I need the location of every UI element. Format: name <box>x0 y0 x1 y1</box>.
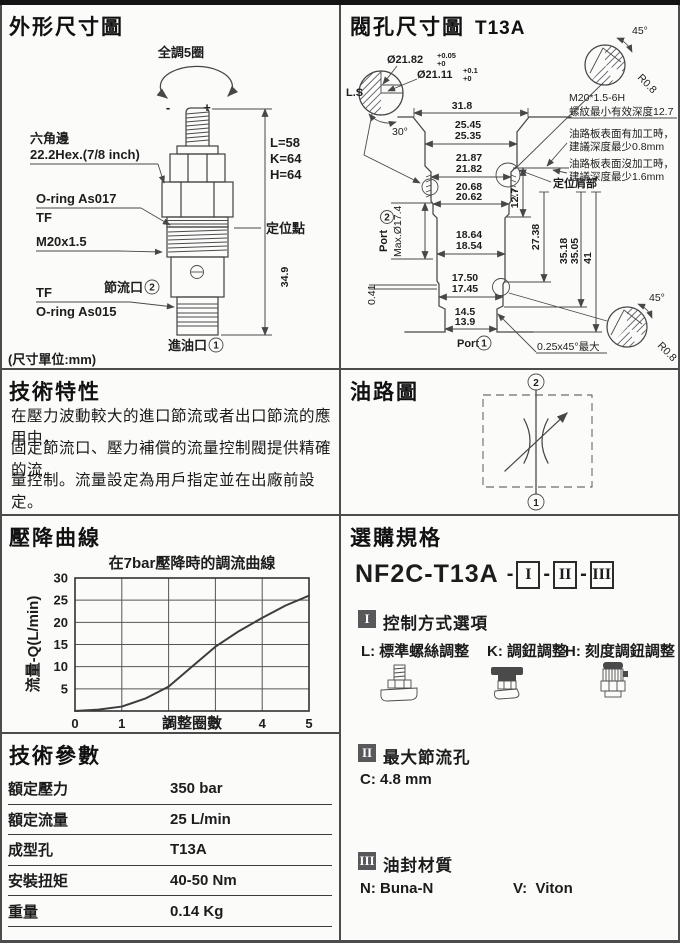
dim-0-41-group: 0.41 <box>366 284 378 305</box>
throttle-arc-right <box>542 419 548 463</box>
dim-18-54: 18.54 <box>456 240 482 252</box>
panel-outline-dimensions: 外形尺寸圖 全調5圈 - + <box>0 5 339 368</box>
page-edge-top <box>0 0 680 5</box>
model-option-box-1: I <box>516 561 540 589</box>
section3-title: 油封材質 <box>383 852 453 876</box>
table-row: 重量0.14 Kg <box>8 896 332 927</box>
section2-badge: II <box>358 744 376 762</box>
table-row: 額定壓力350 bar <box>8 774 332 805</box>
radius-top: R0.8 <box>635 72 659 96</box>
dia2-label: Ø21.11 <box>417 69 452 81</box>
svg-text:5: 5 <box>305 716 312 731</box>
option-L-code: L: <box>361 643 375 660</box>
rotation-arrow <box>160 66 232 98</box>
svg-text:30: 30 <box>54 571 68 586</box>
port2-label-group: Port <box>378 230 390 252</box>
flow-curve-chart: 在7bar壓降時的調流曲線 流量-Q(L/min) 調整圈數 012345510… <box>0 516 339 732</box>
knob-adjust-icon <box>483 662 531 708</box>
model-number: NF2C-T13A <box>355 560 499 589</box>
model-dash-2: - <box>543 563 550 586</box>
seal-n-text: Buna-N <box>380 880 433 897</box>
screw-adjust-icon <box>375 662 423 708</box>
param-value: 40-50 Nm <box>170 872 237 889</box>
page-edge-left <box>0 5 2 943</box>
thread-label: M20x1.5 <box>36 234 87 249</box>
param-label: 重量 <box>8 901 170 922</box>
unit-note: (尺寸單位:mm) <box>8 349 96 368</box>
param-label: 安裝扭矩 <box>8 870 170 891</box>
orifice-value: C: 4.8 mm <box>360 771 432 788</box>
dim-21-82: 21.82 <box>456 163 482 175</box>
minus-label: - <box>166 100 170 115</box>
panel-ordering: 選購規格 NF2C-T13A - I - II - III I 控制方式選項 L… <box>341 516 680 941</box>
inlet-port-label: 進油口 <box>168 338 207 353</box>
model-dash-1: - <box>507 563 514 586</box>
m20-note: M20*1.5-6H <box>569 92 625 104</box>
unmachined-note-1: 油路板表面沒加工時， <box>569 157 674 170</box>
features-line-3: 量控制。流量設定為用戶指定並在出廠前設定。 <box>11 468 339 512</box>
max-dia-group: Max.Ø17.4 <box>392 205 404 257</box>
section2-title: 最大節流孔 <box>383 744 471 768</box>
divider-vertical <box>339 5 341 941</box>
seal-v-code: V: <box>513 880 527 897</box>
dim-27-38: 27.38 <box>530 224 542 250</box>
circuit-diagram: 2 1 <box>341 370 680 514</box>
option-L-text: 標準螺絲調整 <box>379 643 469 660</box>
panel-circuit: 油路圖 2 1 <box>341 370 680 514</box>
svg-text:5: 5 <box>61 681 68 696</box>
chart-plot-area: 01234551015202530 <box>54 571 313 732</box>
section3-badge: III <box>358 852 376 870</box>
param-value: 350 bar <box>170 780 223 797</box>
radius-bot: R0.8 <box>655 340 679 364</box>
svg-text:4: 4 <box>259 716 267 731</box>
dim-25-35: 25.35 <box>455 130 481 142</box>
option-K-text: 調鈕調整 <box>507 643 567 660</box>
option-K-code: K: <box>487 643 503 660</box>
svg-text:25: 25 <box>54 593 68 608</box>
hatch-br1 <box>627 307 646 336</box>
oring-bottom-label: O-ring As015 <box>36 304 116 319</box>
svg-text:3: 3 <box>212 716 219 731</box>
ls-label: L.S <box>346 87 363 99</box>
panel-features: 技術特性 在壓力波動較大的進口節流或者出口節流的應用中， 固定節流口、壓力補償的… <box>0 370 339 514</box>
port1-symbol-num: 1 <box>533 498 539 509</box>
port1-num: 1 <box>481 339 487 350</box>
parameters-table: 額定壓力350 bar 額定流量25 L/min 成型孔T13A 安裝扭矩40-… <box>0 774 339 927</box>
model-dash-3: - <box>580 563 587 586</box>
throttle-port-label: 節流口 <box>104 280 143 295</box>
balloon-left <box>422 179 438 195</box>
angle-30-label: 30° <box>392 126 408 138</box>
dim-H: H=64 <box>270 167 302 182</box>
seal-n-code: N: <box>360 880 376 897</box>
svg-text:1: 1 <box>118 716 125 731</box>
option-H-label: H:刻度調鈕調整 <box>565 640 675 661</box>
dim-0-41: 0.41 <box>366 284 378 305</box>
thread-and-groove-lines <box>167 112 228 326</box>
param-value: T13A <box>170 841 207 858</box>
chart-ylabel: 流量-Q(L/min) <box>24 596 42 693</box>
option-K-label: K:調鈕調整 <box>487 640 567 661</box>
hatch-tr1 <box>605 45 625 72</box>
dim-20-62: 20.62 <box>456 191 482 203</box>
angle-45-bot: 45° <box>649 292 665 304</box>
dim-41: 41 <box>582 252 594 264</box>
balloon-right <box>496 163 520 187</box>
adjust-label: 全調5圈 <box>157 45 204 60</box>
section1-title: 控制方式選項 <box>383 610 488 634</box>
panel-cavity-dimensions: 閥孔尺寸圖T13A L.S Ø21.82 +0.05 +0 Ø21.11 +0.… <box>341 5 680 368</box>
option-L-label: L:標準螺絲調整 <box>361 640 469 661</box>
seal-option-v: V: Viton <box>513 880 573 897</box>
cavity-profile <box>398 117 571 332</box>
param-label: 成型孔 <box>8 839 170 860</box>
chamfer-note: 0.25x45°最大 <box>537 340 600 353</box>
dim-17-45: 17.45 <box>452 283 478 295</box>
panel-parameters: 技術參數 額定壓力350 bar 額定流量25 L/min 成型孔T13A 安裝… <box>0 734 339 941</box>
dim-12-7: 12.7 <box>509 188 521 209</box>
throttle-arc-left <box>524 419 530 463</box>
dim-L: L=58 <box>270 135 300 150</box>
panel-title-ordering: 選購規格 <box>350 522 442 552</box>
chart-title: 在7bar壓降時的調流曲線 <box>109 554 276 572</box>
dim-13-9: 13.9 <box>455 316 476 328</box>
port2-label: Port <box>378 230 390 252</box>
shoulder-label: 定位肩部 <box>553 176 597 190</box>
seal-v-text: Viton <box>536 880 573 897</box>
panel-title-features: 技術特性 <box>9 376 101 406</box>
option-H-code: H: <box>565 643 581 660</box>
dia1-tol-bot: +0 <box>437 59 446 68</box>
dim-34-9: 34.9 <box>279 267 291 288</box>
balloon-bottom <box>493 279 510 296</box>
seal-option-n: N: Buna-N <box>360 880 433 897</box>
inlet-port-num: 1 <box>213 341 219 352</box>
model-option-box-3: III <box>590 561 614 589</box>
param-value: 25 L/min <box>170 811 231 828</box>
tf-bottom-label: TF <box>36 285 52 300</box>
divider-row-1 <box>0 368 680 370</box>
dim-K: K=64 <box>270 151 302 166</box>
divider-row-2 <box>0 514 680 516</box>
param-label: 額定流量 <box>8 809 170 830</box>
hex-label-en: 22.2Hex.(7/8 inch) <box>30 147 140 162</box>
model-number-row: NF2C-T13A - I - II - III <box>355 560 615 589</box>
dim-31-8: 31.8 <box>452 100 473 112</box>
port1-label: Port <box>457 338 479 350</box>
thread-depth-note: 螺紋最小有效深度12.7 <box>569 105 674 118</box>
angle-45-top: 45° <box>632 25 648 37</box>
dia2-tol-bot: +0 <box>463 74 472 83</box>
machined-note-1: 油路板表面有加工時， <box>569 127 674 140</box>
divider-row-3-left <box>0 732 341 734</box>
dia1-label: Ø21.82 <box>387 54 423 66</box>
option-H-text: 刻度調鈕調整 <box>585 643 675 660</box>
cavity-drawing: L.S Ø21.82 +0.05 +0 Ø21.11 +0.1 +0 30° 4… <box>341 5 680 368</box>
svg-text:0: 0 <box>71 716 78 731</box>
port2-symbol-num: 2 <box>533 378 539 389</box>
datasheet-page: 外形尺寸圖 全調5圈 - + <box>0 0 680 943</box>
oring-top-label: O-ring As017 <box>36 191 116 206</box>
svg-text:10: 10 <box>54 659 68 674</box>
valve-body-outline <box>162 108 233 335</box>
machined-note-2: 建議深度最少0.8mm <box>569 140 664 153</box>
height-dimension <box>212 109 272 335</box>
hex-label-cn: 六角邊 <box>30 131 70 146</box>
tf-top-label: TF <box>36 210 52 225</box>
param-label: 額定壓力 <box>8 778 170 799</box>
throttle-port-num: 2 <box>149 283 155 294</box>
max-dia-label: Max.Ø17.4 <box>392 205 404 257</box>
locating-point-label: 定位點 <box>265 221 305 236</box>
svg-text:15: 15 <box>54 637 68 652</box>
svg-text:2: 2 <box>165 716 172 731</box>
svg-text:20: 20 <box>54 615 68 630</box>
model-option-box-2: II <box>553 561 577 589</box>
dim-35-05: 35.05 <box>569 238 581 264</box>
table-row: 安裝扭矩40-50 Nm <box>8 866 332 897</box>
panel-title-parameters: 技術參數 <box>9 740 101 770</box>
graduated-knob-icon <box>589 660 637 708</box>
port2-num: 2 <box>384 213 390 224</box>
param-value: 0.14 Kg <box>170 903 223 920</box>
table-row: 成型孔T13A <box>8 835 332 866</box>
table-row: 額定流量25 L/min <box>8 805 332 836</box>
valve-outline-drawing: 全調5圈 - + <box>0 5 339 368</box>
panel-curve: 壓降曲線 在7bar壓降時的調流曲線 流量-Q(L/min) 調整圈數 0123… <box>0 516 339 732</box>
section1-badge: I <box>358 610 376 628</box>
